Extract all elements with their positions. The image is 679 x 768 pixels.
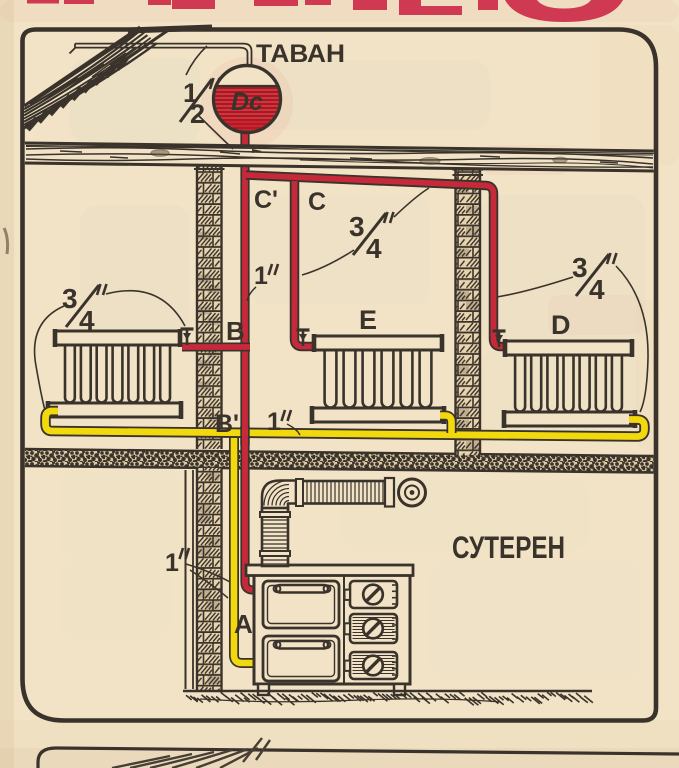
svg-text:1: 1	[254, 262, 268, 290]
svg-text:C': C'	[254, 186, 278, 214]
svg-text:3: 3	[349, 211, 365, 242]
svg-text:E: E	[359, 305, 377, 335]
svg-text:ТАВАН: ТАВАН	[256, 40, 345, 68]
svg-text:СУТЕРЕН: СУТЕРЕН	[452, 529, 565, 565]
svg-text:Dc: Dc	[231, 88, 263, 116]
svg-text:4: 4	[589, 274, 605, 305]
svg-text:4: 4	[366, 233, 382, 264]
svg-text:3: 3	[572, 252, 588, 283]
svg-text:1: 1	[267, 408, 281, 436]
svg-text:D: D	[551, 310, 571, 340]
svg-text:1: 1	[165, 549, 179, 577]
svg-text:B: B	[226, 316, 245, 346]
svg-text:4: 4	[79, 305, 95, 336]
svg-text:C: C	[308, 188, 326, 216]
svg-text:A: A	[234, 609, 253, 639]
svg-text:3: 3	[62, 283, 78, 314]
svg-text:B': B'	[215, 410, 239, 438]
